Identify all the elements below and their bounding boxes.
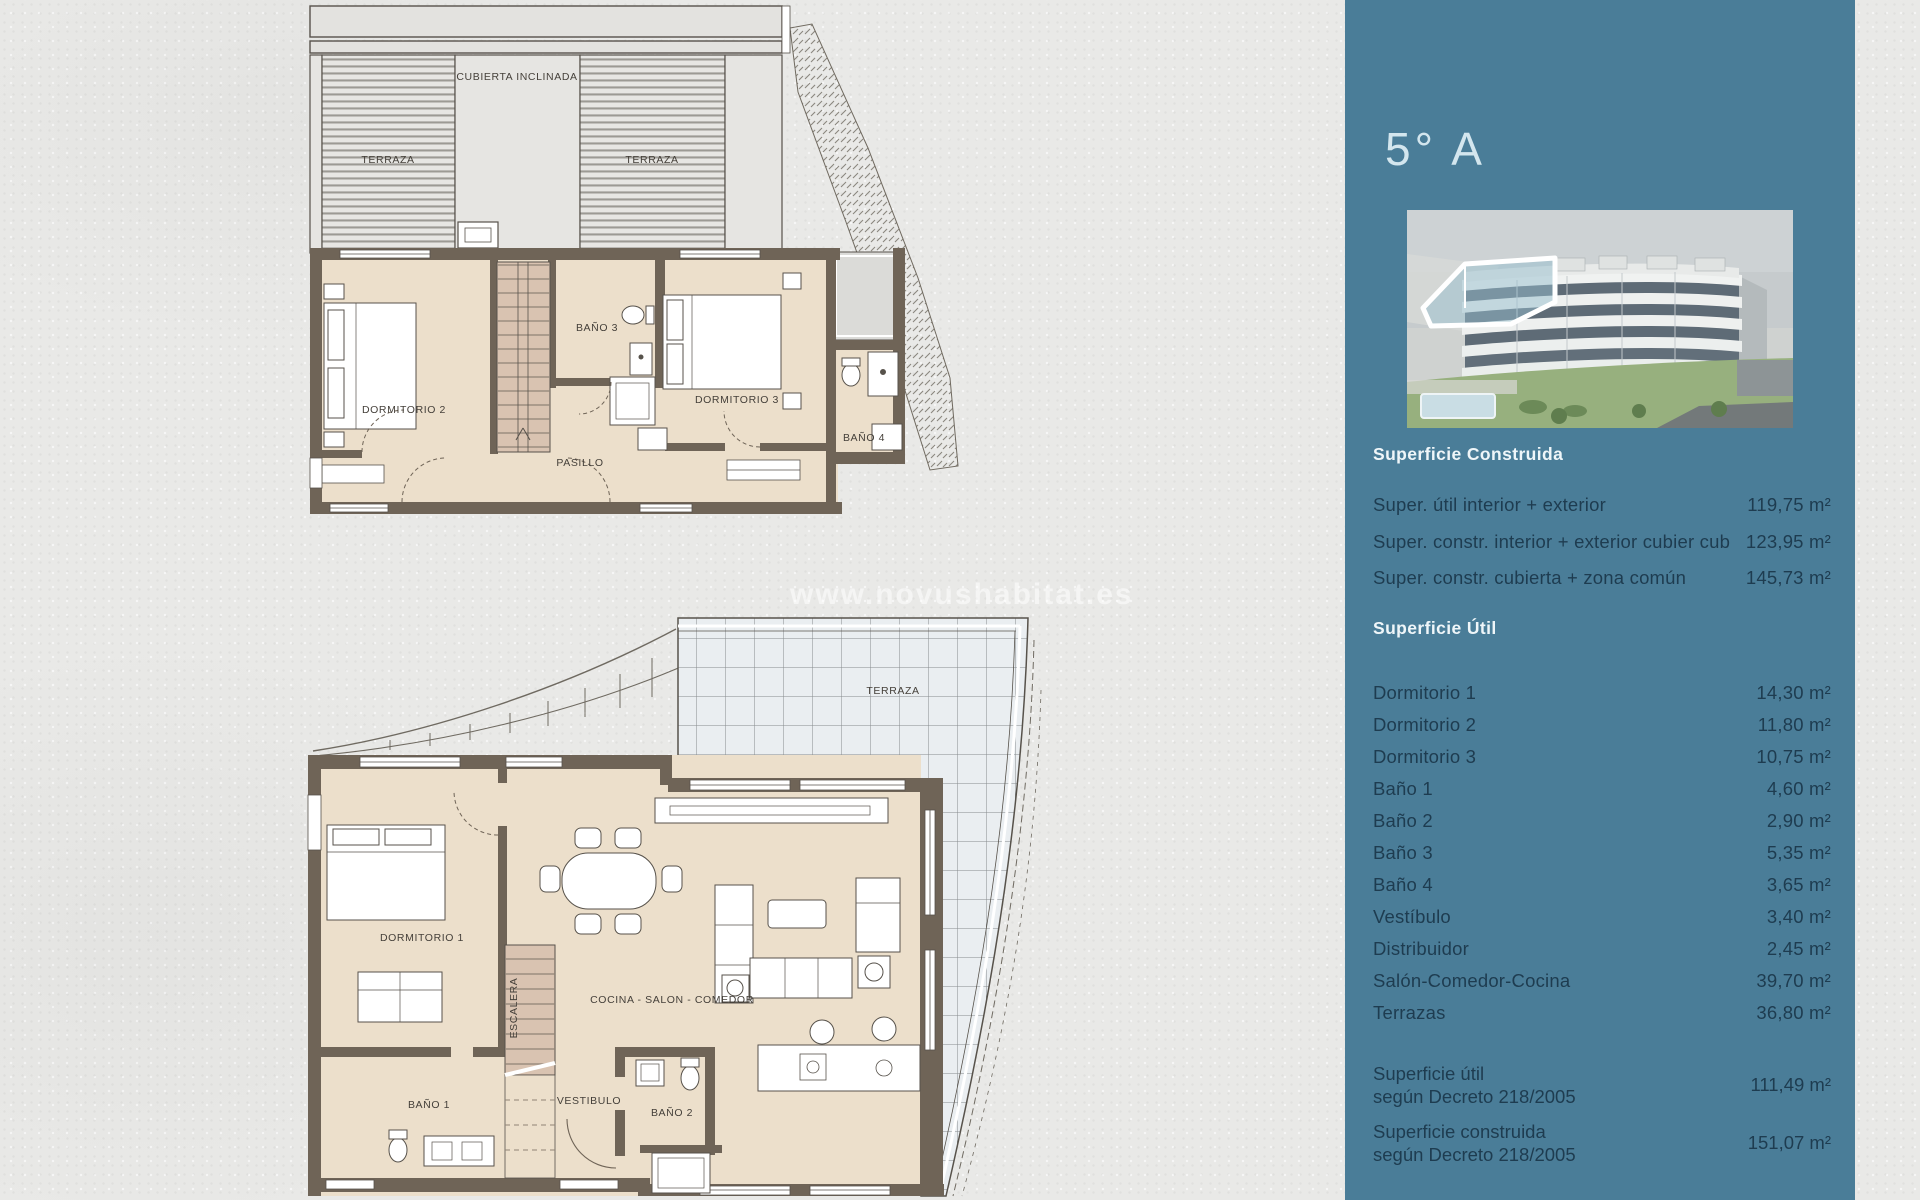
area-label: Salón-Comedor-Cocina [1373,970,1570,992]
area-row: Baño 4 3,65 m² [1373,874,1831,896]
armchair [856,878,900,952]
label-bano1: BAÑO 1 [408,1098,450,1111]
coffee-table [768,900,826,928]
label-terraza-right: TERRAZA [625,154,678,166]
sideboard [655,798,888,823]
decreto-label-line1: Superficie útil [1373,1063,1484,1084]
decreto-label-line2: según Decreto 218/2005 [1373,1086,1576,1107]
area-label: Baño 2 [1373,810,1433,832]
decreto-row: Superficie útil según Decreto 218/2005 1… [1373,1062,1831,1109]
area-label: Super. constr. interior + exterior cubie… [1373,531,1730,553]
area-value: 123,95 m² [1746,531,1831,553]
pool [1421,394,1495,418]
label-dormitorio3: DORMITORIO 3 [695,394,779,406]
shower-bano2 [652,1153,710,1193]
label-terraza-lower: TERRAZA [866,685,919,697]
heading-superficie-construida: Superficie Construida [1373,444,1563,465]
plant-table [858,956,890,988]
dining-table [562,853,656,909]
area-label: Baño 4 [1373,874,1433,896]
label-dormitorio1: DORMITORIO 1 [380,932,464,944]
curved-pergola-railing [313,629,690,756]
area-row: Vestíbulo 3,40 m² [1373,906,1831,928]
lower-floor-plan: TERRAZA [295,600,1065,1200]
unit-title: 5° A [1385,122,1486,176]
label-bano2: BAÑO 2 [651,1106,693,1119]
area-value: 14,30 m² [1756,682,1831,704]
toilet-bano1 [389,1138,407,1162]
area-row: Baño 2 2,90 m² [1373,810,1831,832]
area-value: 119,75 m² [1747,494,1831,516]
area-row: Dormitorio 2 11,80 m² [1373,714,1831,736]
area-value: 10,75 m² [1756,746,1831,768]
area-row: Distribuidor 2,45 m² [1373,938,1831,960]
area-value: 3,40 m² [1767,906,1831,928]
area-value: 2,45 m² [1767,938,1831,960]
area-label: Dormitorio 3 [1373,746,1476,768]
area-label: Dormitorio 2 [1373,714,1476,736]
heading-superficie-util: Superficie Útil [1373,618,1497,639]
area-row: Terrazas 36,80 m² [1373,1002,1831,1024]
area-value: 36,80 m² [1756,1002,1831,1024]
area-value: 11,80 m² [1758,714,1831,736]
info-panel: 5° A [1345,0,1855,1200]
label-vestibulo: VESTIBULO [557,1095,621,1107]
area-row: Baño 1 4,60 m² [1373,778,1831,800]
toilet-bano3 [622,306,644,324]
area-label: Distribuidor [1373,938,1469,960]
label-pasillo: PASILLO [556,457,603,469]
toilet-bano2 [681,1066,699,1090]
patio-void [832,252,902,340]
building-render [1407,210,1793,428]
label-escalera: ESCALERA [508,978,520,1039]
label-cubierta-inclinada: CUBIERTA INCLINADA [456,71,577,83]
area-value: 2,90 m² [1767,810,1831,832]
label-terraza-left: TERRAZA [361,154,414,166]
area-label: Baño 3 [1373,842,1433,864]
floorplan-sheet: TERRAZA CUBIERTA INCLINADA TERRAZA [0,0,1920,1200]
decreto-row: Superficie construida según Decreto 218/… [1373,1120,1831,1167]
area-value: 145,73 m² [1746,567,1831,589]
decreto-value: 111,49 m² [1750,1074,1831,1096]
area-row: Super. constr. cubierta + zona común 145… [1373,567,1831,589]
sofa-bottom [750,958,852,998]
label-bano4: BAÑO 4 [843,431,885,444]
kitchen-island [758,1045,920,1091]
decreto-label-line2: según Decreto 218/2005 [1373,1144,1576,1165]
area-row: Baño 3 5,35 m² [1373,842,1831,864]
area-label: Super. constr. cubierta + zona común [1373,567,1686,589]
area-row: Super. útil interior + exterior 119,75 m… [1373,494,1831,516]
toilet-bano4 [842,364,860,386]
label-dormitorio2: DORMITORIO 2 [362,404,446,416]
roof-edge-bars [310,6,790,53]
area-label: Terrazas [1373,1002,1446,1024]
label-cocina-salon-comedor: COCINA - SALON - COMEDOR [590,994,754,1006]
watermark: www.novushabitat.es [790,578,1130,612]
shower-bano3 [610,377,655,425]
chimney [458,222,498,248]
upper-stairs [497,262,550,452]
upper-floor-plan: TERRAZA CUBIERTA INCLINADA TERRAZA [300,0,1000,530]
area-value: 5,35 m² [1767,842,1831,864]
area-row: Super. constr. interior + exterior cubie… [1373,531,1831,553]
area-value: 39,70 m² [1756,970,1831,992]
area-row: Dormitorio 3 10,75 m² [1373,746,1831,768]
stool [810,1020,834,1044]
area-label: Super. útil interior + exterior [1373,494,1606,516]
decreto-value: 151,07 m² [1748,1132,1831,1154]
label-bano3: BAÑO 3 [576,321,618,334]
building-render-figure [1407,210,1793,428]
area-label: Baño 1 [1373,778,1433,800]
area-row: Salón-Comedor-Cocina 39,70 m² [1373,970,1831,992]
decreto-label-line1: Superficie construida [1373,1121,1546,1142]
area-label: Dormitorio 1 [1373,682,1476,704]
vanity-bano1 [424,1136,494,1166]
stool [872,1017,896,1041]
area-value: 4,60 m² [1767,778,1831,800]
area-value: 3,65 m² [1767,874,1831,896]
area-row: Dormitorio 1 14,30 m² [1373,682,1831,704]
area-label: Vestíbulo [1373,906,1451,928]
